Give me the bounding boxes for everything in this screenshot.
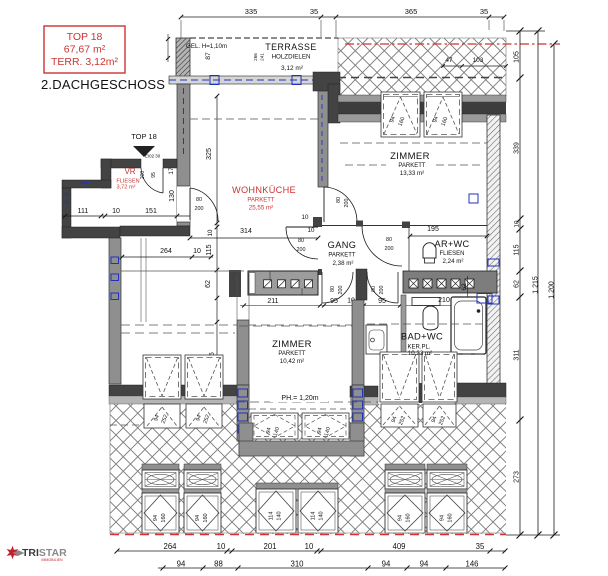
- svg-text:200: 200: [344, 199, 350, 208]
- svg-text:PH.= 1,20m: PH.= 1,20m: [281, 395, 318, 402]
- svg-text:94: 94: [382, 560, 391, 569]
- svg-text:200: 200: [297, 247, 306, 253]
- svg-text:310: 310: [290, 560, 304, 569]
- svg-text:67,67 m²: 67,67 m²: [64, 44, 106, 56]
- svg-text:88: 88: [214, 560, 223, 569]
- svg-text:EI02 30: EI02 30: [145, 154, 161, 159]
- svg-text:80: 80: [386, 237, 392, 243]
- svg-text:151: 151: [145, 208, 157, 215]
- svg-text:80: 80: [330, 286, 336, 292]
- svg-text:325: 325: [206, 148, 213, 160]
- svg-text:62: 62: [514, 280, 521, 288]
- svg-text:200: 200: [385, 246, 394, 252]
- svg-text:210: 210: [438, 297, 450, 304]
- svg-text:140: 140: [319, 511, 325, 520]
- svg-text:2,24 m²: 2,24 m²: [443, 258, 464, 265]
- svg-text:PARKETT: PARKETT: [278, 351, 306, 357]
- svg-text:10: 10: [193, 248, 201, 255]
- svg-text:BAD+WC: BAD+WC: [401, 331, 443, 342]
- svg-text:273: 273: [514, 471, 521, 483]
- svg-text:87: 87: [205, 52, 212, 60]
- svg-text:10: 10: [305, 542, 314, 551]
- svg-text:94: 94: [398, 515, 404, 521]
- svg-text:GEL. H=1,10m: GEL. H=1,10m: [186, 43, 227, 50]
- svg-text:195: 195: [427, 226, 439, 233]
- svg-text:339: 339: [514, 142, 521, 154]
- svg-text:311: 311: [514, 349, 521, 360]
- svg-text:94: 94: [420, 560, 429, 569]
- svg-text:94: 94: [440, 515, 446, 521]
- svg-text:80: 80: [196, 197, 202, 203]
- svg-text:10: 10: [217, 542, 226, 551]
- svg-text:PARKETT: PARKETT: [398, 163, 426, 169]
- svg-text:264: 264: [160, 248, 172, 255]
- svg-text:10: 10: [308, 227, 315, 234]
- svg-text:1.215: 1.215: [533, 276, 540, 294]
- svg-text:94: 94: [195, 515, 201, 521]
- svg-text:35: 35: [480, 7, 488, 16]
- svg-text:VR: VR: [124, 167, 135, 176]
- svg-text:264: 264: [163, 542, 177, 551]
- svg-text:241: 241: [260, 53, 265, 61]
- svg-text:GANG: GANG: [328, 240, 357, 250]
- svg-text:211: 211: [267, 298, 278, 305]
- svg-text:35: 35: [310, 7, 318, 16]
- svg-text:80: 80: [371, 286, 377, 292]
- svg-text:365: 365: [405, 7, 418, 16]
- svg-text:10: 10: [302, 214, 309, 221]
- svg-text:266: 266: [253, 53, 258, 61]
- svg-text:ZIMMER: ZIMMER: [272, 339, 312, 350]
- svg-text:114: 114: [311, 512, 317, 521]
- svg-text:PARKETT: PARKETT: [328, 253, 356, 259]
- svg-text:10,23 m²: 10,23 m²: [408, 350, 432, 357]
- svg-text:25,55 m²: 25,55 m²: [249, 205, 273, 212]
- svg-text:80: 80: [336, 197, 342, 203]
- svg-text:130: 130: [169, 190, 176, 202]
- svg-text:200: 200: [195, 206, 204, 212]
- svg-text:TERRASSE: TERRASSE: [265, 42, 316, 52]
- svg-text:35: 35: [476, 542, 485, 551]
- svg-text:TOP 18: TOP 18: [131, 132, 157, 141]
- svg-text:94: 94: [153, 515, 159, 521]
- svg-text:80: 80: [298, 238, 304, 244]
- svg-text:160: 160: [203, 513, 209, 522]
- svg-text:335: 335: [245, 7, 258, 16]
- svg-text:111: 111: [78, 208, 89, 215]
- svg-text:115: 115: [206, 244, 213, 255]
- svg-text:201: 201: [263, 542, 276, 551]
- svg-text:PARKETT: PARKETT: [247, 198, 275, 204]
- svg-text:160: 160: [406, 513, 412, 522]
- svg-text:10,42 m²: 10,42 m²: [280, 358, 304, 365]
- svg-text:95: 95: [330, 298, 338, 305]
- svg-text:13,33 m²: 13,33 m²: [400, 170, 424, 177]
- svg-text:WOHNKÜCHE: WOHNKÜCHE: [232, 185, 296, 195]
- svg-text:HOLZDIELEN: HOLZDIELEN: [272, 54, 311, 61]
- svg-text:3,12 m²: 3,12 m²: [281, 65, 304, 72]
- svg-text:ZIMMER: ZIMMER: [390, 151, 430, 162]
- svg-text:3,72 m²: 3,72 m²: [117, 185, 136, 191]
- svg-text:62: 62: [461, 283, 468, 291]
- svg-text:94: 94: [177, 560, 186, 569]
- svg-text:10: 10: [514, 220, 521, 228]
- svg-text:IMMOBILIEN: IMMOBILIEN: [41, 558, 63, 562]
- svg-text:62: 62: [205, 280, 212, 288]
- svg-text:TERR. 3,12m²: TERR. 3,12m²: [51, 56, 119, 68]
- svg-text:409: 409: [392, 542, 405, 551]
- svg-text:140: 140: [277, 511, 283, 520]
- svg-text:AR+WC: AR+WC: [435, 239, 470, 249]
- svg-text:10: 10: [207, 229, 214, 236]
- svg-text:TOP 18: TOP 18: [67, 31, 103, 43]
- svg-text:160: 160: [161, 513, 167, 522]
- svg-text:314: 314: [240, 228, 252, 235]
- svg-text:200: 200: [338, 286, 344, 295]
- svg-text:95: 95: [151, 172, 157, 178]
- svg-text:1.200: 1.200: [549, 281, 556, 299]
- svg-text:2.DACHGESCHOSS: 2.DACHGESCHOSS: [41, 77, 165, 92]
- svg-text:160: 160: [448, 513, 454, 522]
- svg-text:105: 105: [514, 51, 521, 63]
- svg-text:200: 200: [379, 286, 385, 295]
- svg-text:2,38 m²: 2,38 m²: [333, 260, 354, 267]
- svg-text:115: 115: [514, 244, 521, 255]
- svg-text:146: 146: [465, 560, 478, 569]
- svg-text:200: 200: [140, 171, 146, 180]
- svg-text:114: 114: [269, 512, 275, 521]
- svg-text:103: 103: [473, 57, 484, 64]
- svg-text:95: 95: [378, 298, 386, 305]
- svg-text:17: 17: [168, 167, 175, 175]
- svg-text:FLIESEN: FLIESEN: [439, 251, 464, 257]
- svg-text:47: 47: [445, 57, 453, 64]
- svg-text:10: 10: [112, 208, 120, 215]
